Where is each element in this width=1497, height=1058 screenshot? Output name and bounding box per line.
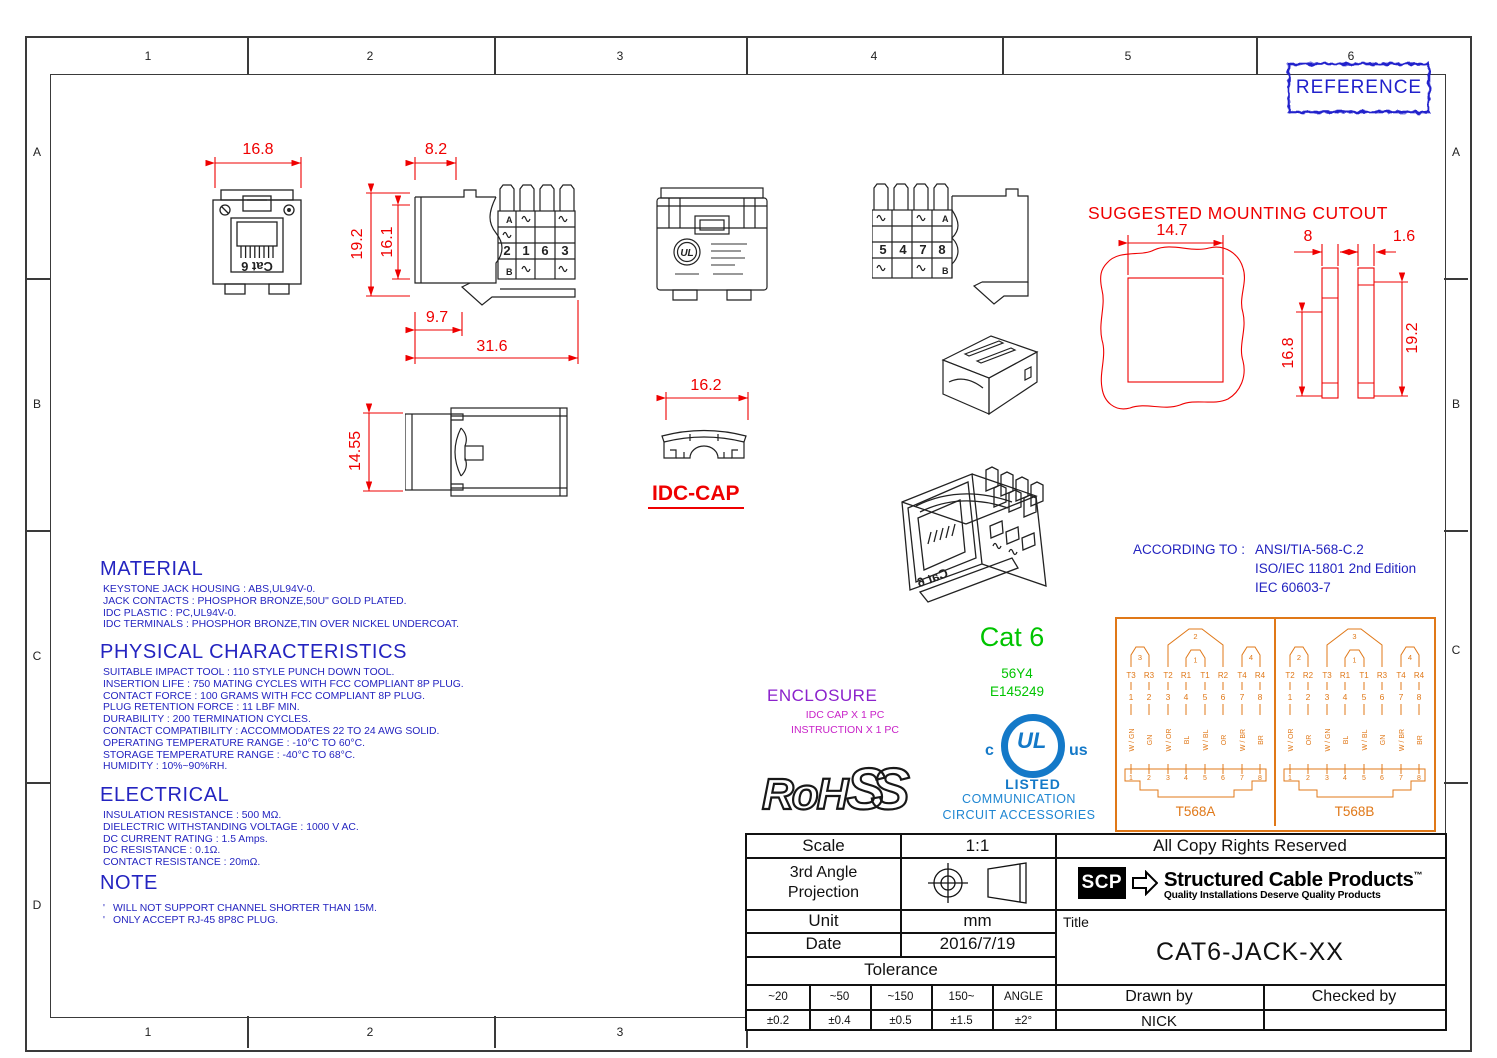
wiring-panel: 3 2 1 4 T3R3 T2R1 T1R2 T4R4 12 34 56 78 … xyxy=(1115,617,1436,832)
dim-side-inner: 16.1 xyxy=(379,226,397,257)
svg-text:4: 4 xyxy=(1408,653,1412,662)
svg-text:7: 7 xyxy=(1399,775,1403,782)
svg-text:R1: R1 xyxy=(1340,671,1351,680)
dim-front-width: 16.8 xyxy=(242,141,273,159)
tol-header: ~20 xyxy=(747,984,809,1009)
standards-prefix: ACCORDING TO : xyxy=(1133,540,1245,597)
svg-text:T568B: T568B xyxy=(1335,804,1375,819)
svg-text:R2: R2 xyxy=(1218,671,1229,680)
svg-text:R2: R2 xyxy=(1303,671,1314,680)
wiring-panel-divider xyxy=(1274,619,1276,826)
scp-arrow-icon xyxy=(1132,870,1158,896)
svg-text:T1: T1 xyxy=(1200,671,1210,680)
drawing-sheet: 1 2 3 4 5 6 1 2 3 A B C D A B C REFERENC… xyxy=(0,0,1497,1058)
tolerance-label: Tolerance xyxy=(747,956,1055,984)
svg-text:W / OR: W / OR xyxy=(1166,729,1173,752)
tol-header: 150~ xyxy=(931,984,992,1009)
material-lines: KEYSTONE JACK HOUSING : ABS,UL94V-0.JACK… xyxy=(103,584,459,631)
svg-text:1: 1 xyxy=(1288,692,1293,702)
svg-text:BR: BR xyxy=(1417,735,1424,745)
svg-text:2: 2 xyxy=(1147,775,1151,782)
svg-text:4: 4 xyxy=(1343,692,1348,702)
svg-text:OR: OR xyxy=(1221,735,1228,746)
dim-side-total: 31.6 xyxy=(476,338,507,356)
svg-text:W / BL: W / BL xyxy=(1203,729,1210,750)
note-lines: 'WILL NOT SUPPORT CHANNEL SHORTER THAN 1… xyxy=(103,903,377,927)
side-left-pin: 2 xyxy=(503,243,510,258)
ul-file-number: E145249 xyxy=(990,684,1044,699)
physical-heading: PHYSICAL CHARACTERISTICS xyxy=(100,641,407,664)
checked-by-value xyxy=(1263,1009,1445,1033)
svg-text:W / BR: W / BR xyxy=(1240,729,1247,751)
svg-text:7: 7 xyxy=(1399,692,1404,702)
checked-by-label: Checked by xyxy=(1263,984,1445,1009)
svg-text:W / GN: W / GN xyxy=(1325,729,1332,752)
svg-text:R3: R3 xyxy=(1377,671,1388,680)
tol-value: ±0.2 xyxy=(747,1009,809,1033)
rear-view-drawing: UL xyxy=(653,186,771,306)
tol-header: ANGLE xyxy=(992,984,1055,1009)
rear-ul-mark: UL xyxy=(680,248,693,259)
idc-cap-label: IDC-CAP xyxy=(648,482,744,509)
top-view-drawing xyxy=(405,406,573,498)
svg-text:3: 3 xyxy=(1325,775,1329,782)
svg-text:R1: R1 xyxy=(1181,671,1192,680)
side-left-row-a: A xyxy=(506,215,513,225)
front-view-cat6-label: Cat 6 xyxy=(241,259,273,274)
svg-text:6: 6 xyxy=(1221,775,1225,782)
side-right-pin: 5 xyxy=(879,242,886,257)
svg-text:5: 5 xyxy=(1362,692,1367,702)
svg-text:2: 2 xyxy=(1147,692,1152,702)
svg-text:3: 3 xyxy=(1166,775,1170,782)
dim-cutout-hole: 16.8 xyxy=(1280,337,1298,368)
tol-value: ±2° xyxy=(992,1009,1055,1033)
svg-text:T2: T2 xyxy=(1285,671,1295,680)
t568b-diagram: 2 3 1 4 T2R2 T3R1 T1R3 T4R4 12 34 56 78 … xyxy=(1277,619,1433,826)
svg-text:GN: GN xyxy=(1380,735,1387,746)
enclosure-line: INSTRUCTION X 1 PC xyxy=(791,724,899,736)
cat6-label: Cat 6 xyxy=(980,622,1045,653)
svg-text:1: 1 xyxy=(1288,775,1292,782)
svg-text:T3: T3 xyxy=(1322,671,1332,680)
dim-cutout-width: 14.7 xyxy=(1156,222,1187,240)
svg-text:BL: BL xyxy=(1184,736,1191,745)
svg-text:W / OR: W / OR xyxy=(1288,729,1295,752)
svg-text:8: 8 xyxy=(1258,775,1262,782)
drawn-by-label: Drawn by xyxy=(1055,984,1263,1009)
tol-header: ~150 xyxy=(870,984,931,1009)
svg-text:7: 7 xyxy=(1240,775,1244,782)
svg-text:6: 6 xyxy=(1380,775,1384,782)
enclosure-line: IDC CAP X 1 PC xyxy=(806,709,885,721)
date-value: 2016/7/19 xyxy=(900,932,1055,956)
scale-label: Scale xyxy=(747,835,900,857)
svg-text:T4: T4 xyxy=(1237,671,1247,680)
ul-letters: UL xyxy=(1017,728,1046,754)
tol-value: ±0.5 xyxy=(870,1009,931,1033)
drawing-title: CAT6-JACK-XX xyxy=(1055,925,1445,980)
svg-text:8: 8 xyxy=(1417,775,1421,782)
svg-text:GN: GN xyxy=(1147,735,1154,746)
jack-iso-drawing: Cat 6 xyxy=(890,440,1105,638)
svg-text:W / GN: W / GN xyxy=(1129,729,1136,752)
svg-text:8: 8 xyxy=(1417,692,1422,702)
tol-value: ±0.4 xyxy=(809,1009,870,1033)
ul-code: 56Y4 xyxy=(1001,666,1033,681)
svg-text:8: 8 xyxy=(1258,692,1263,702)
ul-c: c xyxy=(985,742,994,760)
svg-text:2: 2 xyxy=(1306,775,1310,782)
t568a-diagram: 3 2 1 4 T3R3 T2R1 T1R2 T4R4 12 34 56 78 … xyxy=(1118,619,1274,826)
svg-text:R4: R4 xyxy=(1255,671,1266,680)
side-right-row-b: B xyxy=(942,266,949,276)
svg-text:3: 3 xyxy=(1166,692,1171,702)
svg-text:4: 4 xyxy=(1249,653,1253,662)
scale-value: 1:1 xyxy=(900,835,1055,857)
note-heading: NOTE xyxy=(100,872,158,895)
dim-cutout-plate: 8 xyxy=(1304,228,1313,246)
front-view-drawing: Cat 6 xyxy=(211,188,303,302)
tol-header: ~50 xyxy=(809,984,870,1009)
svg-text:1: 1 xyxy=(1194,658,1198,665)
title-block-line xyxy=(1055,909,1445,911)
svg-text:4: 4 xyxy=(1343,775,1347,782)
standards-items: ANSI/TIA-568-C.2ISO/IEC 11801 2nd Editio… xyxy=(1255,540,1416,597)
ul-us: us xyxy=(1069,742,1088,760)
idc-cap-iso-drawing xyxy=(925,330,1045,424)
svg-text:BL: BL xyxy=(1343,736,1350,745)
projection-symbol xyxy=(900,857,1055,909)
svg-text:1: 1 xyxy=(1129,692,1134,702)
tol-value: ±1.5 xyxy=(931,1009,992,1033)
ul-desc-line1: COMMUNICATION xyxy=(962,792,1076,806)
copyright-text: All Copy Rights Reserved xyxy=(1055,835,1445,857)
side-right-pin: 4 xyxy=(899,242,907,257)
unit-label: Unit xyxy=(747,909,900,932)
idc-cap-front-drawing xyxy=(660,420,748,464)
svg-text:7: 7 xyxy=(1240,692,1245,702)
svg-text:5: 5 xyxy=(1203,692,1208,702)
dim-side-top: 8.2 xyxy=(425,141,447,159)
svg-text:2: 2 xyxy=(1193,632,1197,641)
svg-text:OR: OR xyxy=(1306,735,1313,746)
side-left-pin: 3 xyxy=(561,243,568,258)
drawn-by-value: NICK xyxy=(1055,1009,1263,1033)
svg-text:W / BR: W / BR xyxy=(1399,729,1406,751)
physical-lines: SUITABLE IMPACT TOOL : 110 STYLE PUNCH D… xyxy=(103,667,464,773)
svg-text:3: 3 xyxy=(1138,653,1142,662)
svg-text:2: 2 xyxy=(1306,692,1311,702)
svg-text:1: 1 xyxy=(1353,658,1357,665)
brand-text: Structured Cable Products™ Quality Insta… xyxy=(1164,865,1422,901)
brand-row: SCP Structured Cable Products™ Quality I… xyxy=(1055,857,1445,909)
svg-text:6: 6 xyxy=(1380,692,1385,702)
title-block: Scale 1:1 3rd AngleProjection Unit mm Da… xyxy=(745,833,1447,1031)
date-label: Date xyxy=(747,932,900,956)
svg-text:T3: T3 xyxy=(1126,671,1136,680)
dim-cutout-panel: 19.2 xyxy=(1404,322,1422,353)
svg-text:3: 3 xyxy=(1325,692,1330,702)
standards-block: ACCORDING TO : ANSI/TIA-568-C.2ISO/IEC 1… xyxy=(1133,540,1416,597)
svg-text:1: 1 xyxy=(1129,775,1133,782)
svg-text:2: 2 xyxy=(1297,653,1301,662)
side-left-pin: 6 xyxy=(541,243,548,258)
cutout-title: SUGGESTED MOUNTING CUTOUT xyxy=(1088,203,1388,224)
unit-value: mm xyxy=(900,909,1055,932)
rohs-logo: RoHSS xyxy=(762,756,896,823)
side-view-left-drawing: A B 2 1 6 3 xyxy=(408,183,580,317)
side-right-row-a: A xyxy=(942,214,949,224)
svg-text:T4: T4 xyxy=(1396,671,1406,680)
side-left-row-b: B xyxy=(506,267,513,277)
electrical-heading: ELECTRICAL xyxy=(100,784,229,807)
svg-text:R4: R4 xyxy=(1414,671,1425,680)
ul-listed-text: LISTED xyxy=(1005,776,1061,792)
svg-text:BR: BR xyxy=(1258,735,1265,745)
electrical-lines: INSULATION RESISTANCE : 500 MΩ.DIELECTRI… xyxy=(103,810,359,869)
svg-text:T1: T1 xyxy=(1359,671,1369,680)
iso-cat6-label: Cat 6 xyxy=(915,565,950,590)
svg-text:W / BL: W / BL xyxy=(1362,729,1369,750)
svg-text:6: 6 xyxy=(1221,692,1226,702)
side-right-pin: 8 xyxy=(938,242,945,257)
svg-text:3: 3 xyxy=(1352,632,1356,641)
svg-text:4: 4 xyxy=(1184,775,1188,782)
material-heading: MATERIAL xyxy=(100,558,203,581)
dim-topview-height: 14.55 xyxy=(347,431,365,471)
side-view-right-drawing: A B 5 4 7 8 xyxy=(872,182,1036,314)
svg-text:5: 5 xyxy=(1203,775,1207,782)
ul-desc-line2: CIRCUIT ACCESSORIES xyxy=(942,808,1095,822)
scp-logo: SCP xyxy=(1078,867,1126,899)
svg-text:T2: T2 xyxy=(1163,671,1173,680)
dim-cutout-gap: 1.6 xyxy=(1393,228,1415,246)
side-right-pin: 7 xyxy=(919,242,926,257)
svg-text:R3: R3 xyxy=(1144,671,1155,680)
svg-text:5: 5 xyxy=(1362,775,1366,782)
enclosure-heading: ENCLOSURE xyxy=(767,686,877,706)
third-angle-projection-icon xyxy=(918,861,1038,905)
dim-idccap-width: 16.2 xyxy=(690,377,721,395)
svg-text:4: 4 xyxy=(1184,692,1189,702)
projection-label: 3rd AngleProjection xyxy=(747,857,900,909)
svg-text:T568A: T568A xyxy=(1176,804,1216,819)
dim-side-height: 19.2 xyxy=(349,228,367,259)
side-left-pin: 1 xyxy=(522,243,529,258)
